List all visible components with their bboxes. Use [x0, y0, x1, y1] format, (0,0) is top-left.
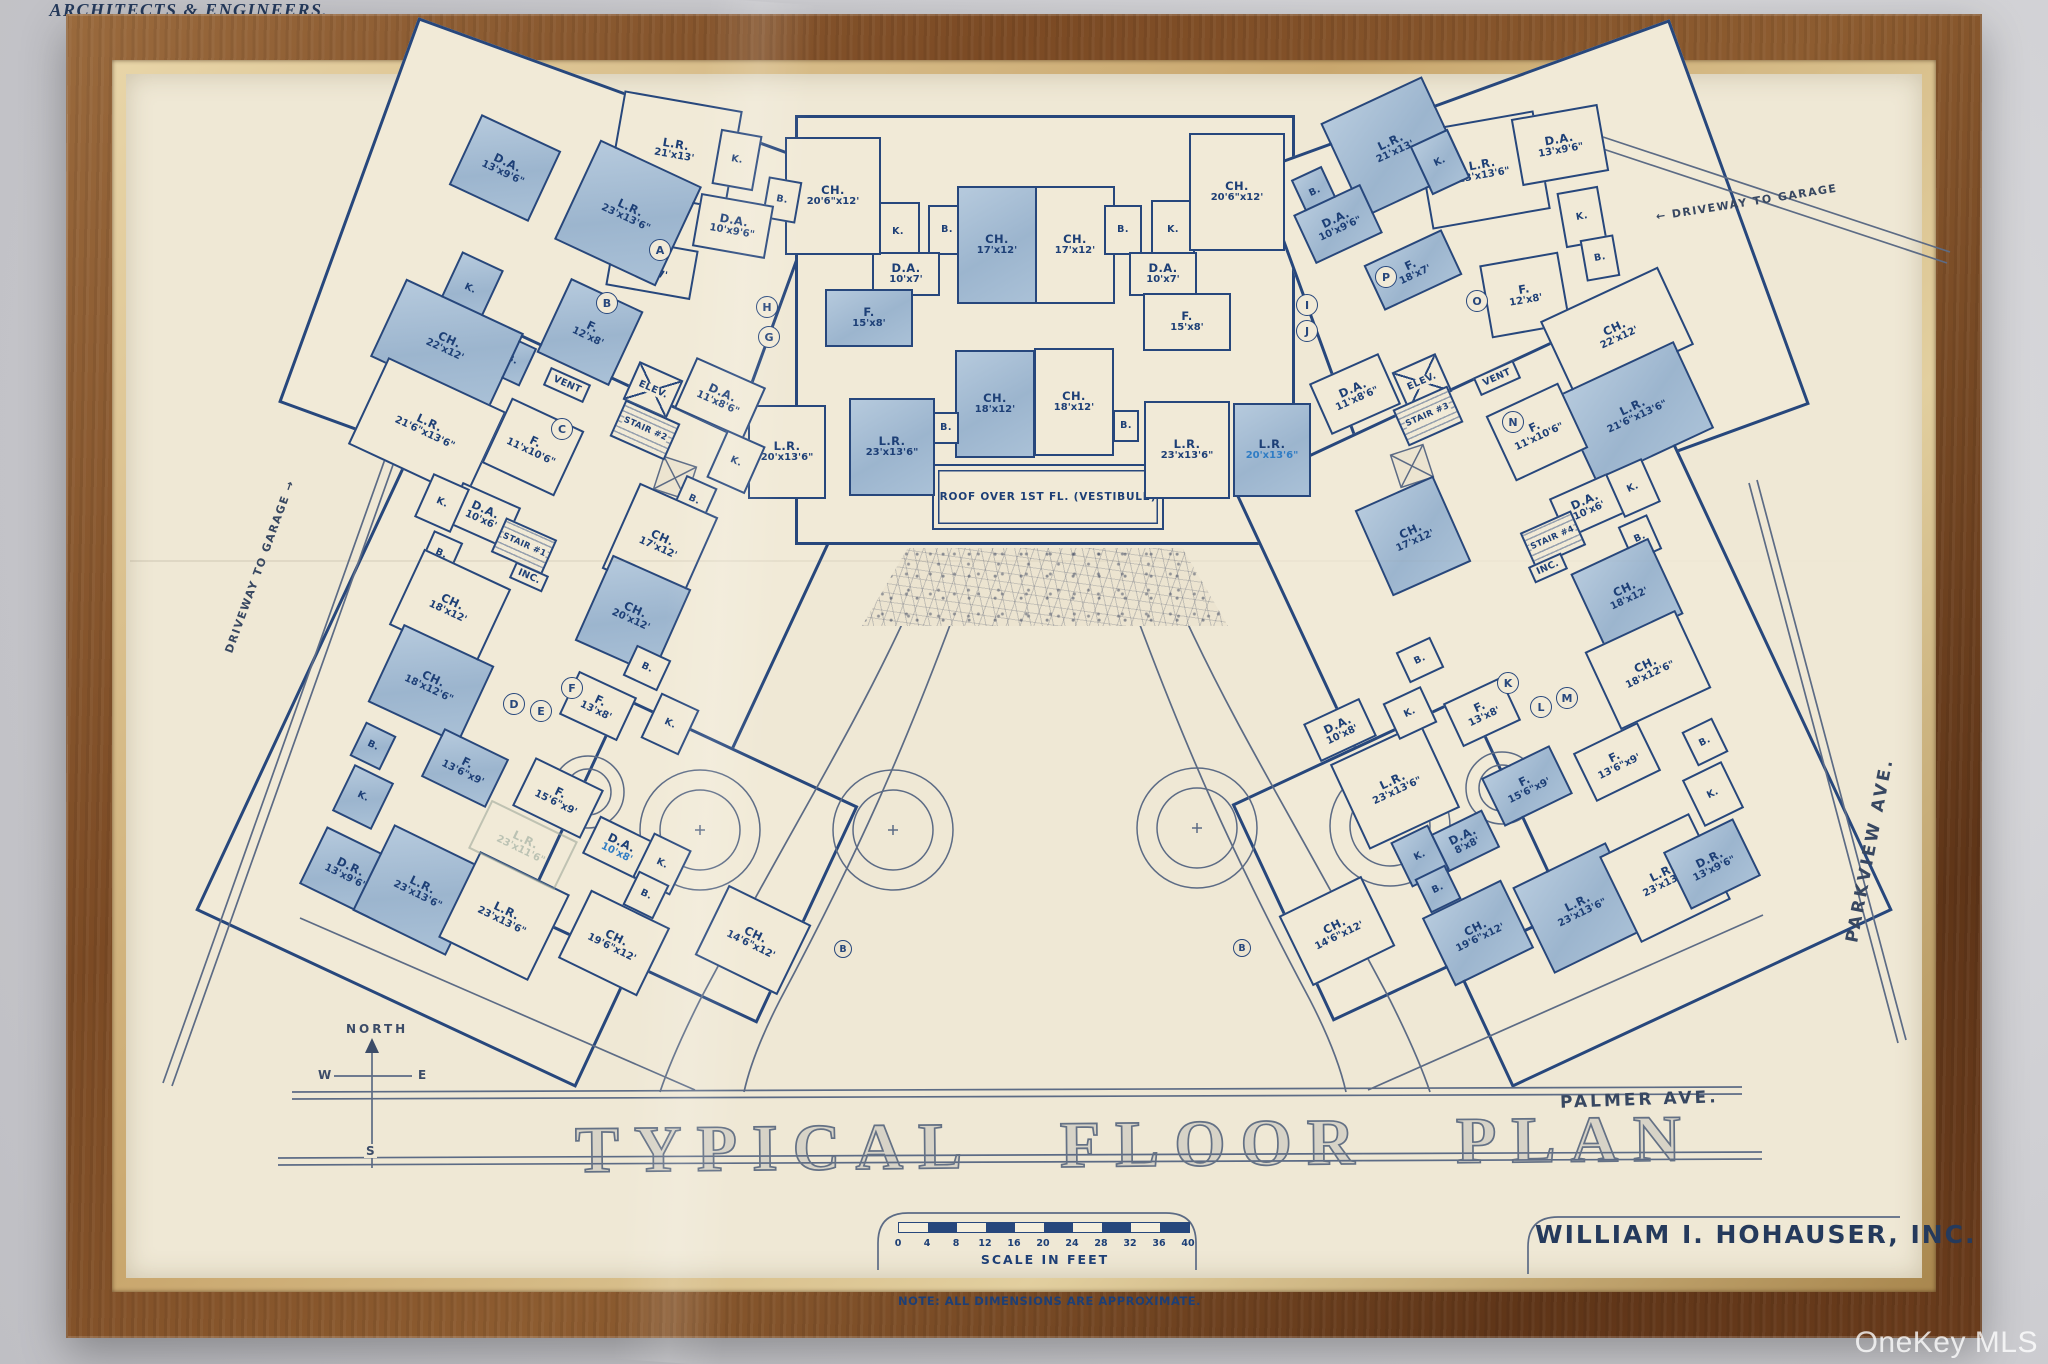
scale-tick: 40 [1178, 1238, 1198, 1249]
apartment-marker: C [551, 418, 573, 440]
dimensions-note: NOTE: ALL DIMENSIONS ARE APPROXIMATE. [898, 1294, 1201, 1308]
apartment-marker: B [596, 292, 618, 314]
room: F.15'x8' [825, 289, 913, 347]
room: L.R.23'x13'6" [849, 398, 935, 496]
scale-tick: 28 [1091, 1238, 1111, 1249]
scale-tick: 8 [946, 1238, 966, 1249]
apartment-marker: F [561, 677, 583, 699]
compass-east-label: E [418, 1068, 426, 1082]
path-marker: B [1233, 939, 1251, 957]
apartment-marker: O [1466, 290, 1488, 312]
room: CH.20'6"x12' [1189, 133, 1285, 251]
room: F.15'x8' [1143, 293, 1231, 351]
scale-tick: 0 [888, 1238, 908, 1249]
scale-tick: 12 [975, 1238, 995, 1249]
mls-watermark: OneKey MLS [1855, 1326, 2038, 1360]
scale-tick: 36 [1149, 1238, 1169, 1249]
scale-tick: 16 [1004, 1238, 1024, 1249]
scale-segment [1015, 1223, 1044, 1232]
room: B. [1580, 234, 1621, 281]
scale-segment [1160, 1223, 1189, 1232]
room: B. [933, 412, 959, 444]
apartment-marker: N [1502, 411, 1524, 433]
room: CH.17'x12' [1035, 186, 1115, 304]
scale-segment [986, 1223, 1015, 1232]
scale-segment [1044, 1223, 1073, 1232]
scale-label: SCALE IN FEET [930, 1252, 1160, 1267]
room: CH.18'x12' [1034, 348, 1114, 456]
apartment-marker: A [649, 239, 671, 261]
room: B. [1113, 410, 1139, 442]
apartment-marker: J [1296, 320, 1318, 342]
apartment-marker: K [1497, 672, 1519, 694]
apartment-marker: E [530, 700, 552, 722]
scale-segment [1102, 1223, 1131, 1232]
architect-firm-name: WILLIAM I. HOHAUSER, INC. [1535, 1220, 1913, 1249]
scale-bar [898, 1222, 1190, 1233]
path-marker: B [834, 940, 852, 958]
room: L.R.23'x13'6" [1144, 401, 1230, 499]
compass-north-arrow [365, 1038, 379, 1053]
scale-tick: 32 [1120, 1238, 1140, 1249]
room: B. [1104, 205, 1142, 255]
compass-west-label: W [318, 1068, 331, 1082]
scale-segment [1131, 1223, 1160, 1232]
room: L.R.20'x13'6" [1233, 403, 1311, 497]
apartment-marker: P [1375, 266, 1397, 288]
scale-segment [1073, 1223, 1102, 1232]
paper-crease [130, 560, 1910, 562]
scale-tick: 24 [1062, 1238, 1082, 1249]
room: CH.17'x12' [957, 186, 1037, 304]
apartment-marker: M [1556, 687, 1578, 709]
apartment-marker: D [503, 693, 525, 715]
scale-tick: 20 [1033, 1238, 1053, 1249]
scale-segment [928, 1223, 957, 1232]
framed-floor-plan-photo: ROOF OVER 1ST FL. (VESTIBULE) K.B.D.A.10… [0, 0, 2048, 1364]
vestibule-roof-label: ROOF OVER 1ST FL. (VESTIBULE) [932, 464, 1164, 530]
scale-tick: 4 [917, 1238, 937, 1249]
scale-segment [899, 1223, 928, 1232]
compass-north-label: NORTH [346, 1022, 408, 1036]
room: CH.18'x12' [955, 350, 1035, 458]
compass-south-label: S [364, 1144, 377, 1158]
room: D.A.10'x7' [1129, 252, 1197, 296]
scale-segment [957, 1223, 986, 1232]
apartment-marker: L [1530, 696, 1552, 718]
apartment-marker: I [1296, 294, 1318, 316]
vestibule-roof-text: ROOF OVER 1ST FL. (VESTIBULE) [940, 491, 1157, 503]
